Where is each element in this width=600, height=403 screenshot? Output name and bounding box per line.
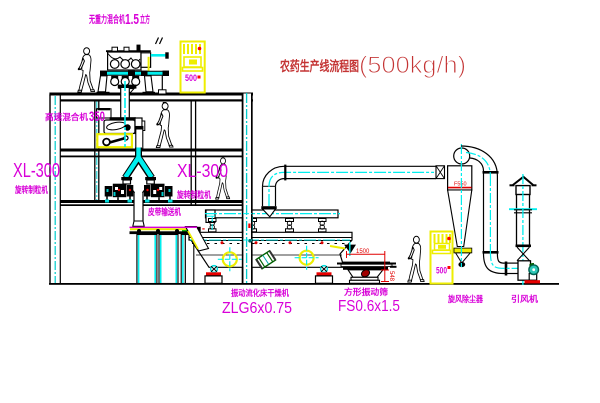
svg-text:立方: 立方 [140,13,150,26]
svg-text:ZLG6x0.75: ZLG6x0.75 [222,300,292,317]
svg-text:方形振动筛: 方形振动筛 [344,287,389,297]
svg-text:XL-300: XL-300 [177,161,228,181]
svg-text:500: 500 [185,73,197,83]
svg-text:旋转制粒机: 旋转制粒机 [14,184,48,195]
svg-text:XL-300: XL-300 [13,160,60,182]
svg-text:引风机: 引风机 [511,294,539,304]
svg-text:高速混合机: 高速混合机 [45,112,88,122]
svg-text:(500kg/h): (500kg/h) [359,52,466,79]
svg-text:振动流化床干燥机: 振动流化床干燥机 [231,288,289,298]
svg-text:FS0.6x1.5: FS0.6x1.5 [338,298,400,315]
svg-text:500: 500 [436,266,447,276]
svg-text:1.5: 1.5 [125,11,139,28]
svg-text:旋转制粒机: 旋转制粒机 [176,189,211,200]
svg-text:548: 548 [388,271,394,282]
svg-text:F550: F550 [454,182,467,188]
svg-text:无重力混合机: 无重力混合机 [88,13,125,26]
svg-text:旋风除尘器: 旋风除尘器 [447,294,483,304]
svg-text:1500: 1500 [356,249,370,255]
svg-text:350: 350 [89,108,105,124]
svg-text:农药生产线流程图: 农药生产线流程图 [279,58,359,74]
svg-text:皮带输送机: 皮带输送机 [147,206,181,217]
